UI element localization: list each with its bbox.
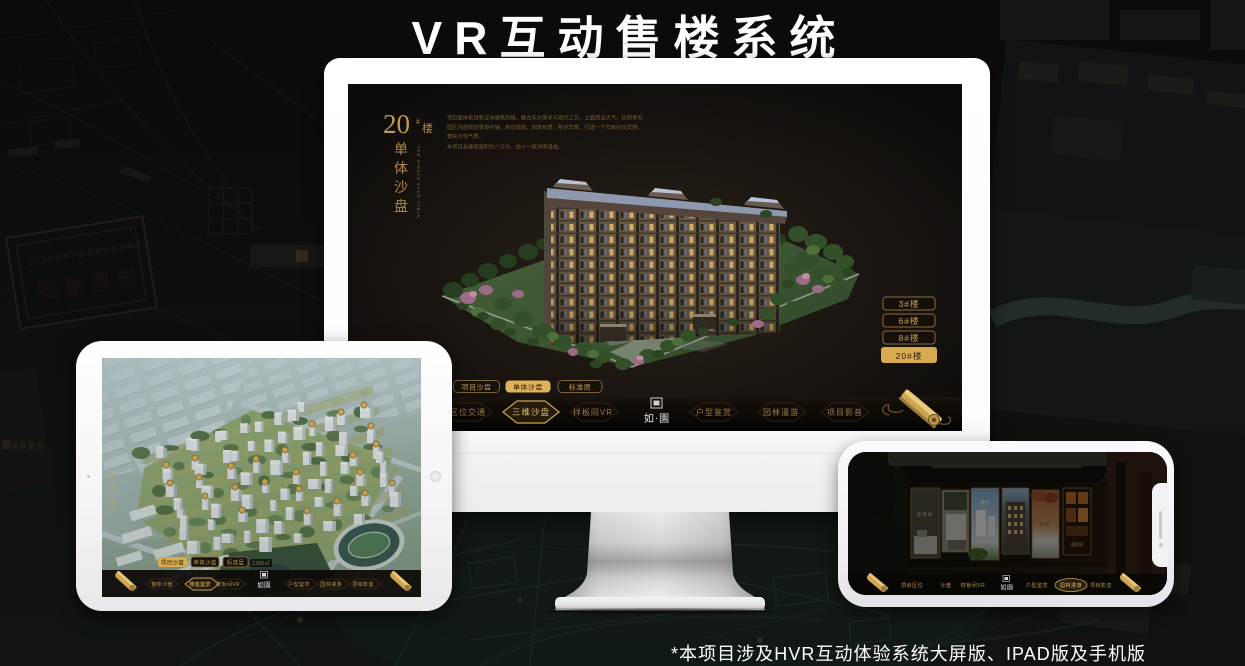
svg-text:本项目总建筑面积约八万方，由十一栋洋房组成。: 本项目总建筑面积约八万方，由十一栋洋房组成。 (447, 143, 563, 151)
svg-text:三: 三 (110, 493, 116, 500)
svg-text:路: 路 (110, 502, 116, 510)
svg-text:单体沙盘: 单体沙盘 (513, 383, 543, 392)
svg-text:8#楼: 8#楼 (899, 333, 920, 343)
svg-text:福星惠誉: 福星惠誉 (10, 441, 46, 451)
svg-text:户型鉴赏: 户型鉴赏 (696, 407, 732, 417)
svg-text:区位交通: 区位交通 (450, 407, 486, 417)
svg-text:THE SINGLE SAND TABLE: THE SINGLE SAND TABLE (416, 146, 421, 219)
svg-text:整体沙盘: 整体沙盘 (151, 580, 173, 588)
svg-text:国: 国 (110, 473, 116, 480)
svg-text:沙盘: 沙盘 (940, 582, 951, 589)
svg-text:际: 际 (110, 482, 116, 490)
svg-text:20: 20 (383, 109, 410, 139)
svg-text:样板间VR: 样板间VR (573, 407, 613, 417)
svg-text:园区内部规划景观中轴，高低错落，四季有景，移步异景，打造一个: 园区内部规划景观中轴，高低错落，四季有景，移步异景，打造一个归家的仪式感， (447, 123, 643, 131)
svg-text:盘: 盘 (394, 198, 408, 215)
svg-text:1366㎡: 1366㎡ (252, 560, 270, 567)
svg-text:项目沙盘: 项目沙盘 (161, 559, 184, 567)
svg-text:单体沙盘: 单体沙盘 (193, 559, 216, 567)
svg-text:户型鉴赏: 户型鉴赏 (1026, 582, 1048, 589)
svg-text:楼: 楼 (422, 121, 433, 135)
svg-text:园林漫游: 园林漫游 (1060, 582, 1082, 589)
svg-text:园林漫游: 园林漫游 (320, 580, 342, 588)
svg-text:项目影音: 项目影音 (352, 580, 374, 588)
svg-text:楼座鉴赏: 楼座鉴赏 (189, 580, 211, 588)
svg-text:项目沙盘: 项目沙盘 (462, 383, 492, 392)
svg-text:沙: 沙 (394, 181, 408, 196)
svg-text:样板间VR: 样板间VR (216, 580, 240, 588)
svg-text:单: 单 (394, 142, 408, 158)
svg-text:如園: 如園 (257, 580, 270, 589)
svg-text:户型鉴赏: 户型鉴赏 (288, 580, 310, 588)
svg-text:3#楼: 3#楼 (899, 299, 920, 309)
svg-text:体: 体 (394, 161, 408, 177)
svg-text:如園: 如園 (1000, 584, 1013, 592)
svg-text:项目整体采用新亚洲建筑风格，融合东方美学与现代工艺，立面简洁: 项目整体采用新亚洲建筑风格，融合东方美学与现代工艺，立面简洁大气，比例考究 (447, 114, 643, 122)
svg-text:样板间VR: 样板间VR (961, 582, 985, 589)
svg-text:如·園: 如·園 (644, 412, 670, 425)
svg-text:尊崇大宅气质。: 尊崇大宅气质。 (447, 132, 484, 140)
svg-text:项目影音: 项目影音 (1090, 582, 1112, 589)
svg-text:项目影音: 项目影音 (827, 407, 863, 417)
svg-text:项目区位: 项目区位 (901, 582, 923, 589)
svg-text:#: # (416, 117, 420, 126)
svg-text:20#楼: 20#楼 (896, 351, 923, 361)
svg-text:三维沙盘: 三维沙盘 (512, 407, 550, 417)
svg-text:标准层: 标准层 (569, 383, 592, 392)
svg-text:6#楼: 6#楼 (899, 316, 920, 326)
svg-text:标准层: 标准层 (227, 559, 245, 567)
svg-text:园林漫游: 园林漫游 (763, 407, 799, 417)
